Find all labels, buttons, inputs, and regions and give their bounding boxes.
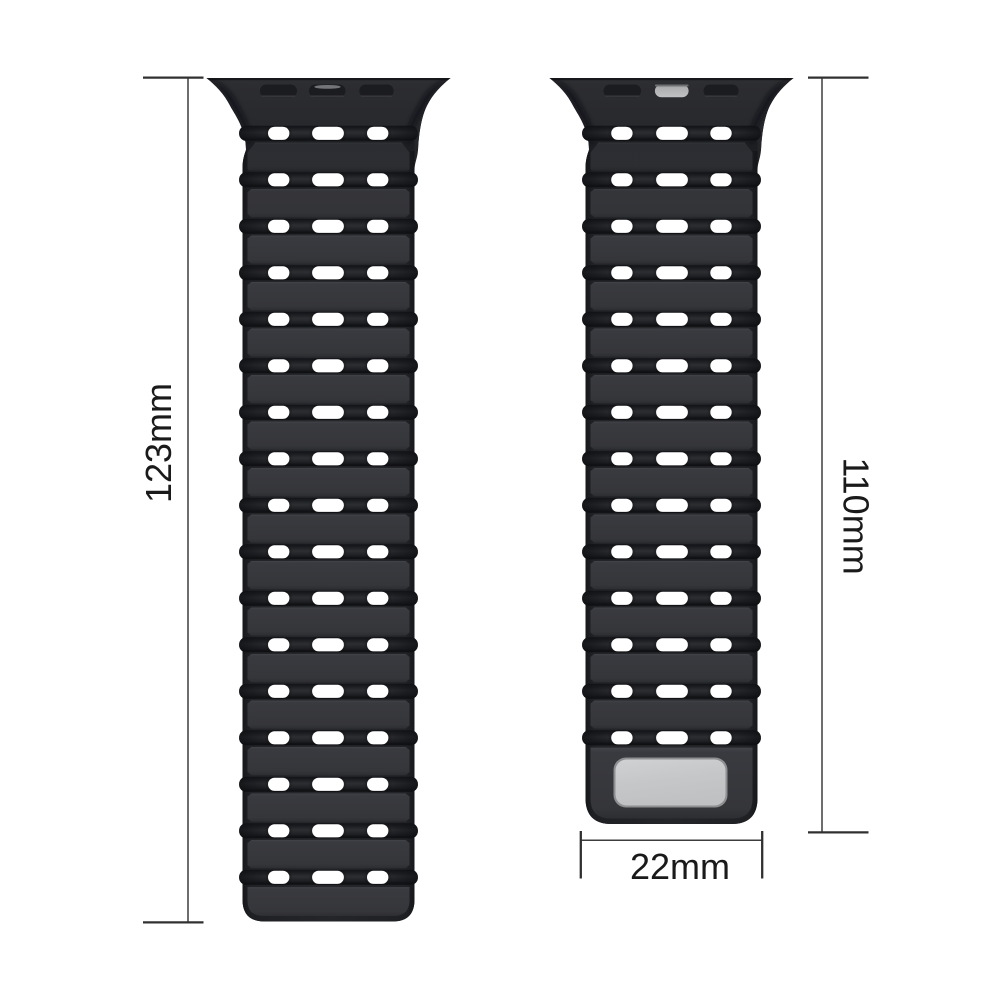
svg-text:22mm: 22mm xyxy=(630,846,730,887)
svg-text:110mm: 110mm xyxy=(836,457,877,574)
svg-text:123mm: 123mm xyxy=(138,383,179,503)
